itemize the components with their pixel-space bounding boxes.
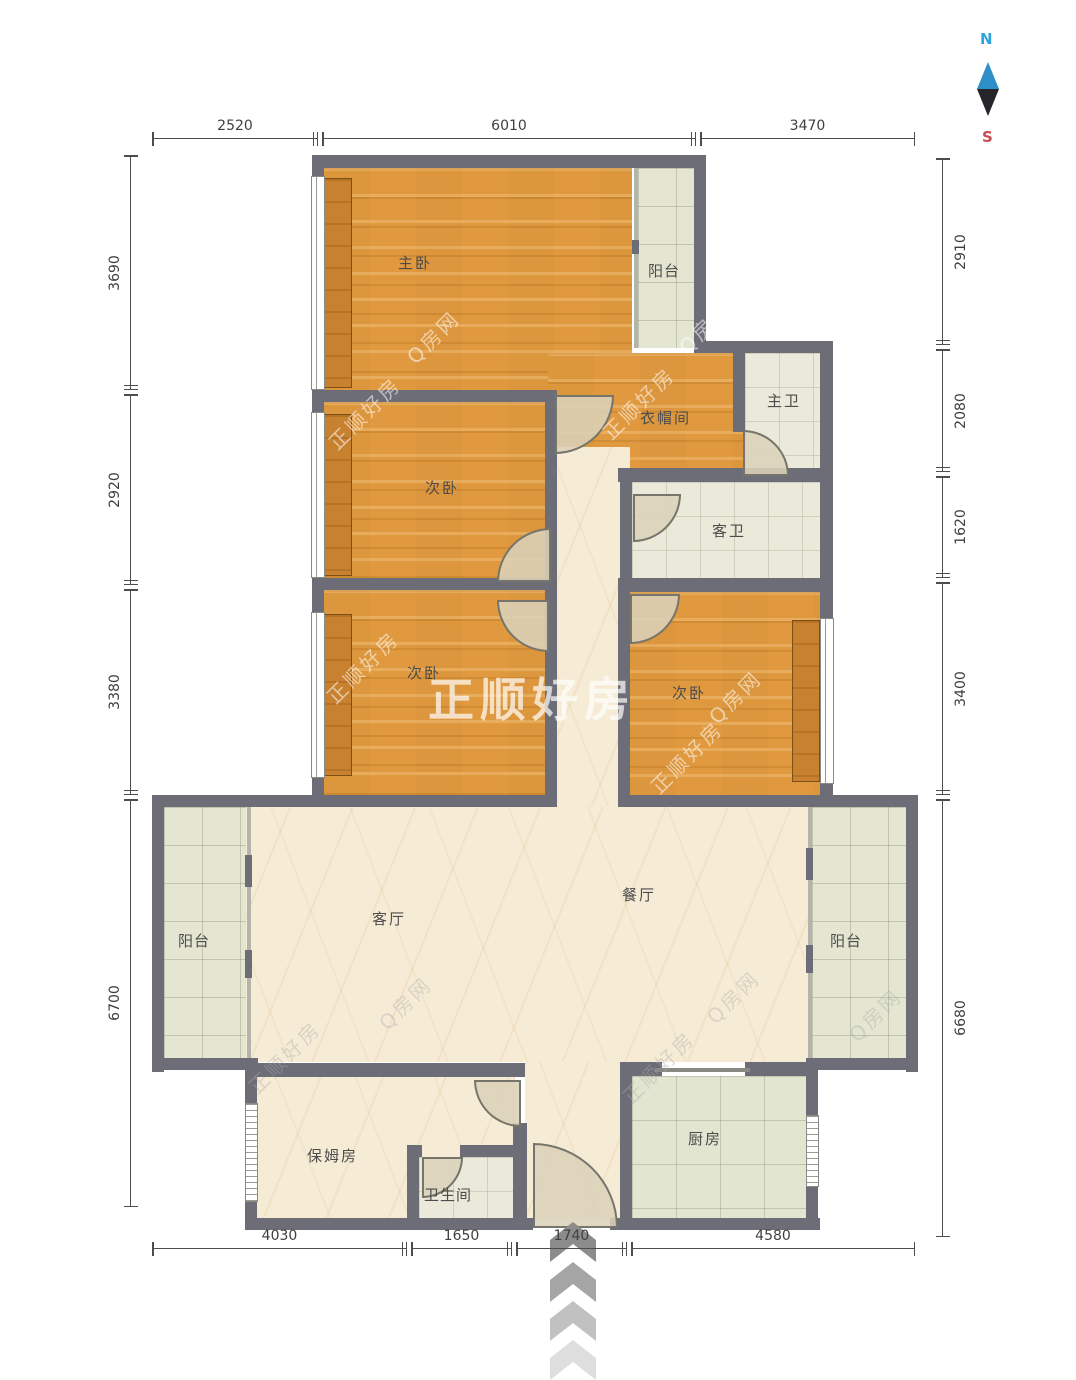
window <box>311 612 325 778</box>
room-label-nanny-room: 保姆房 <box>307 1145 358 1166</box>
dimension-right-3: 1620 <box>942 476 943 578</box>
frame-segment <box>245 855 252 887</box>
dimension-left-4: 6700 <box>130 799 131 1207</box>
dimension-left-3: 3380 <box>130 589 131 795</box>
dimension-right-2: 2080 <box>942 349 943 472</box>
dimension-left-2: 2920 <box>130 394 131 585</box>
room-label-balcony-left: 阳台 <box>178 930 210 951</box>
wall <box>152 1058 258 1070</box>
room-label-kitchen: 厨房 <box>688 1128 722 1149</box>
window <box>311 176 325 390</box>
wall <box>694 341 833 353</box>
wall <box>820 341 833 591</box>
wall <box>407 1145 419 1230</box>
window <box>806 1115 819 1187</box>
wall <box>312 155 706 168</box>
room-label-bedroom-c: 次卧 <box>672 682 706 703</box>
room-label-bathroom: 卫生间 <box>424 1184 472 1205</box>
window-bay <box>322 178 352 388</box>
room-label-cloakroom: 衣帽间 <box>640 407 691 428</box>
window <box>245 1103 258 1202</box>
frame-segment <box>245 950 252 978</box>
entry-arrow-chevron <box>550 1340 596 1380</box>
window <box>820 618 834 784</box>
wall <box>628 795 918 807</box>
room-label-bedroom-a: 次卧 <box>425 477 459 498</box>
frame-segment <box>806 945 813 973</box>
window-bay <box>792 620 820 782</box>
compass-north-label: N <box>980 30 993 48</box>
compass-south-label: S <box>982 128 993 146</box>
room-label-bedroom-b: 次卧 <box>407 662 441 683</box>
room-label-master-bath: 主卫 <box>767 390 801 411</box>
entry-arrow-chevron <box>550 1301 596 1341</box>
room-label-dining-room: 餐厅 <box>622 884 656 905</box>
dimension-top-1: 2520 <box>152 138 318 139</box>
dimension-right-4: 3400 <box>942 582 943 795</box>
wall <box>460 1145 523 1157</box>
room-label-master-bedroom: 主卧 <box>398 252 432 273</box>
dimension-bottom-1: 4030 <box>152 1248 407 1249</box>
balcony-window-frame <box>808 807 812 1058</box>
room-label-guest-bath: 客卫 <box>712 520 746 541</box>
room-label-living-room: 客厅 <box>372 908 406 929</box>
wall <box>618 468 833 482</box>
balcony-window-frame <box>634 168 638 348</box>
room-balcony-top-floor <box>638 168 694 348</box>
balcony-window-frame <box>247 807 251 1058</box>
frame-segment <box>632 240 639 254</box>
dimension-right-5: 6680 <box>942 799 943 1237</box>
wall <box>733 348 745 432</box>
wall <box>620 482 632 590</box>
watermark: 正顺好房 <box>148 634 234 720</box>
dimension-top-2: 6010 <box>322 138 696 139</box>
wall <box>745 1062 818 1076</box>
wall <box>513 1123 527 1230</box>
wall <box>806 1058 918 1070</box>
wall <box>152 795 548 807</box>
dimension-right-1: 2910 <box>942 158 943 345</box>
wall <box>906 795 918 1072</box>
wall <box>152 795 164 1072</box>
room-label-balcony-top: 阳台 <box>648 260 680 281</box>
dimension-top-3: 3470 <box>700 138 915 139</box>
frame-segment <box>806 848 813 880</box>
dimension-bottom-2: 1650 <box>411 1248 512 1249</box>
dimension-bottom-3: 1740 <box>516 1248 627 1249</box>
dimension-bottom-4: 4580 <box>631 1248 915 1249</box>
wall <box>312 390 557 402</box>
wall <box>618 578 833 592</box>
room-label-balcony-right: 阳台 <box>830 930 862 951</box>
dimension-left-1: 3690 <box>130 155 131 390</box>
entry-arrow-chevron <box>550 1262 596 1302</box>
floorplan-canvas: 正顺好房 Q房网 正顺好房 Q房网 正顺好房 正顺好房 Q房网 正顺好房 正顺好… <box>0 0 1076 1380</box>
watermark-center: 正顺好房 <box>428 664 636 730</box>
living-dining-floor <box>164 807 906 1062</box>
compass-needle-south <box>977 89 999 116</box>
compass-needle-north <box>977 62 999 89</box>
